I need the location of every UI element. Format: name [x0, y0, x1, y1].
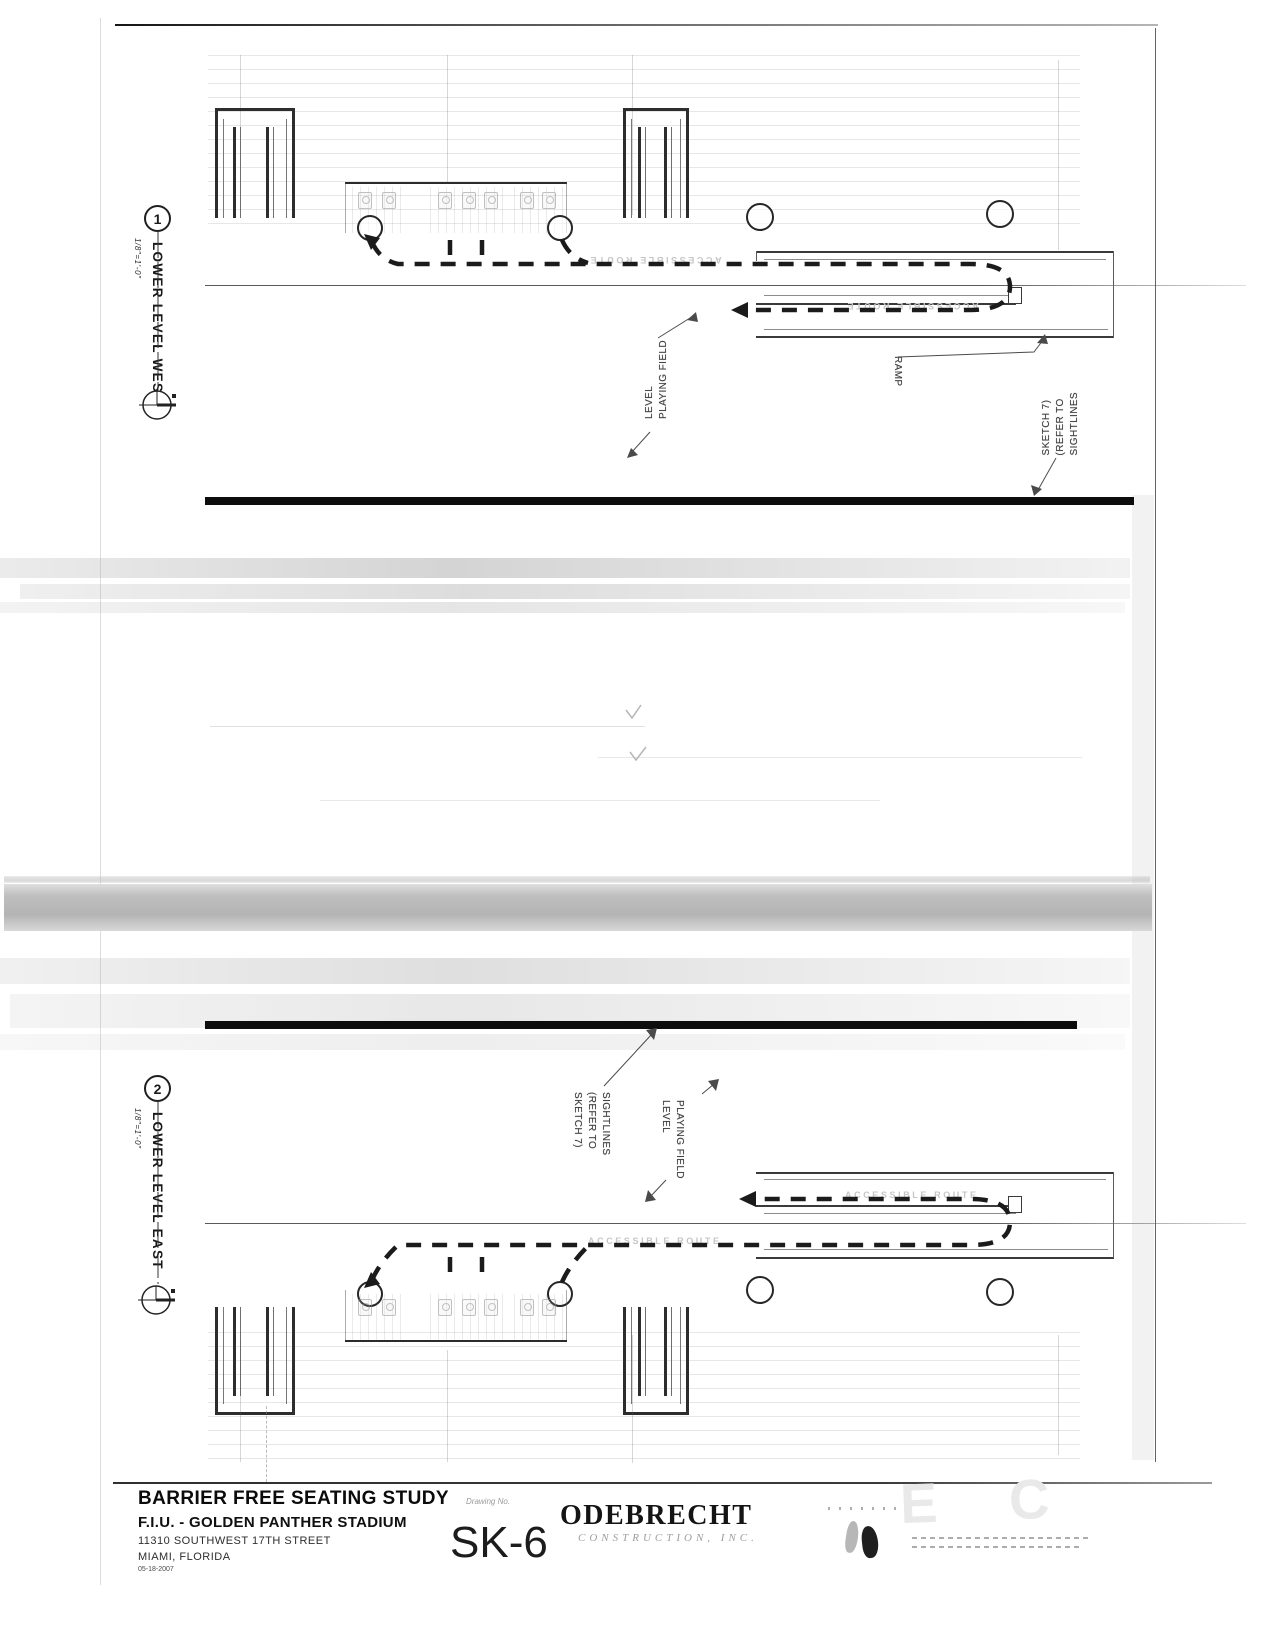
- leader-arrowhead: [708, 1079, 719, 1091]
- stair-vomitory-left: [215, 108, 295, 218]
- ramp-line: [764, 259, 1106, 260]
- drawing-no-label: Drawing No.: [466, 1497, 510, 1506]
- top-edge-scan-line: [115, 24, 1158, 26]
- sheet-title: BARRIER FREE SEATING STUDY: [138, 1488, 449, 1510]
- right-scan-fold-line: [1155, 28, 1156, 1462]
- stand-edge-thick-line: [205, 497, 1134, 505]
- ramp-end-wall: [1113, 1172, 1114, 1258]
- scan-smudge-band: [0, 958, 1130, 984]
- ramp-line: [756, 1257, 1114, 1259]
- playing-field-label: PLAYING FIELD LEVEL: [658, 1100, 686, 1179]
- faint-mid-line: [210, 726, 645, 727]
- ramp-switchback-landing: [1008, 1196, 1022, 1213]
- accessible-route-text: ACCESSIBLE ROUTE: [588, 255, 722, 265]
- signature-blob: [860, 1525, 879, 1558]
- leader-line: [632, 318, 1056, 490]
- detail-number-bubble: 1: [144, 205, 171, 232]
- leader-arrowhead: [1031, 485, 1042, 496]
- detail-scale-note: 1/8"=1'-0": [133, 1108, 142, 1149]
- scanner-gray-band: [4, 876, 1150, 883]
- grid-line: [447, 1350, 448, 1462]
- stamp-text-line: [912, 1537, 1090, 1539]
- detail-title: LOWER LEVEL EAST: [150, 1112, 165, 1270]
- column-circle: [746, 1276, 774, 1304]
- stamp-dot-row: [828, 1507, 898, 1510]
- grid-line: [447, 55, 448, 183]
- ramp-switchback-landing: [1008, 287, 1022, 304]
- grid-line: [1058, 1335, 1059, 1455]
- playing-field-label: LEVEL PLAYING FIELD: [643, 340, 671, 419]
- scanned-sheet: ACCESSIBLE ROUTE ACCESSIBLE ROUTE LEVEL …: [0, 0, 1275, 1649]
- ramp-line: [756, 336, 1114, 338]
- route-arrowhead: [731, 302, 748, 318]
- ramp-line: [764, 295, 1016, 296]
- wheelchair-seat-cluster: [430, 187, 504, 233]
- project-address: 11310 SOUTHWEST 17TH STREET: [138, 1535, 331, 1547]
- drawing-number: SK-6: [450, 1518, 548, 1568]
- stamp-text-line: [912, 1546, 1080, 1548]
- seating-area-side: [345, 183, 346, 233]
- seating-area-edge: [345, 182, 567, 184]
- accessible-route-text: ACCESSIBLE ROUTE: [845, 1190, 979, 1200]
- ramp-line: [764, 1249, 1108, 1250]
- grid-line: [632, 1335, 633, 1463]
- column-circle: [986, 1278, 1014, 1306]
- leader-arrowhead: [687, 312, 698, 322]
- accessible-route-text: ACCESSIBLE ROUTE: [845, 301, 979, 311]
- ramp-line: [756, 1172, 1114, 1174]
- scan-smudge-band: [20, 584, 1130, 599]
- scan-smudge-band: [0, 602, 1125, 613]
- ramp-line: [764, 1213, 1016, 1214]
- ramp-end-wall: [1113, 251, 1114, 338]
- ramp-line: [756, 1205, 1016, 1207]
- column-circle: [986, 200, 1014, 228]
- grid-line: [1058, 60, 1059, 250]
- scanner-gray-band: [4, 884, 1152, 931]
- north-arrow-icon: [138, 1286, 175, 1314]
- company-subtitle: CONSTRUCTION, INC.: [578, 1532, 758, 1544]
- ramp-label: RAMP: [890, 356, 904, 387]
- faint-divider-line: [266, 1406, 267, 1482]
- detail-number: 1: [154, 211, 162, 227]
- ramp-line: [764, 329, 1108, 330]
- column-circle: [746, 203, 774, 231]
- detail-title: LOWER LEVEL WEST: [150, 242, 165, 403]
- playing-field-edge-line: [205, 1223, 1246, 1224]
- left-page-edge-line: [100, 18, 101, 1585]
- sightlines-label: SKETCH 7) (REFER TO SIGHTLINES: [1040, 392, 1082, 455]
- detail-scale-note: 1/8"=1'-0": [133, 238, 142, 279]
- playing-field-edge-line: [205, 285, 1246, 286]
- right-scan-shadow: [1132, 495, 1154, 1460]
- scan-smudge-band: [0, 1034, 1125, 1050]
- ramp-line: [756, 251, 1114, 253]
- leader-arrowhead: [627, 448, 638, 458]
- scan-smudge-band: [0, 558, 1130, 578]
- company-logo-text: ODEBRECHT: [560, 1500, 752, 1532]
- stamp-watermark: E C: [899, 1465, 1079, 1536]
- column-circle: [547, 215, 573, 241]
- accessible-route-text: ACCESSIBLE ROUTE: [588, 1236, 722, 1246]
- detail-number-bubble: 2: [144, 1075, 171, 1102]
- route-arrowhead: [739, 1191, 756, 1207]
- leader-arrowhead: [645, 1190, 656, 1202]
- scan-mark: [626, 705, 646, 760]
- ramp-line: [756, 251, 757, 261]
- seating-row-lines: [208, 1332, 1080, 1464]
- project-city: MIAMI, FLORIDA: [138, 1551, 231, 1563]
- stand-edge-thick-line: [205, 1021, 1077, 1029]
- faint-mid-line: [598, 757, 1082, 758]
- stair-vomitory-right: [623, 108, 689, 218]
- faint-mid-line: [320, 800, 880, 801]
- ramp-line: [764, 1179, 1106, 1180]
- detail-number: 2: [154, 1081, 162, 1097]
- signature-blob: [844, 1520, 860, 1553]
- sightlines-label: SIGHTLINES (REFER TO SKETCH 7): [570, 1092, 612, 1155]
- project-name: F.I.U. - GOLDEN PANTHER STADIUM: [138, 1514, 407, 1531]
- column-circle: [357, 215, 383, 241]
- sheet-date: 05-18-2007: [138, 1566, 174, 1573]
- grid-line: [240, 1340, 241, 1462]
